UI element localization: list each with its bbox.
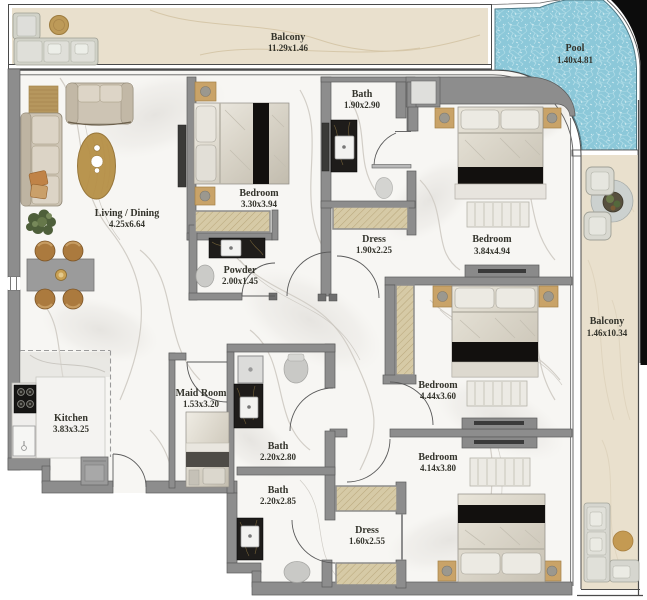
svg-text:1.46x10.34: 1.46x10.34 [587, 328, 628, 338]
svg-text:Bedroom: Bedroom [418, 452, 458, 463]
svg-text:Bath: Bath [268, 441, 289, 452]
svg-text:Powder: Powder [224, 265, 257, 276]
svg-text:4.14x3.80: 4.14x3.80 [420, 463, 457, 473]
svg-text:Kitchen: Kitchen [54, 413, 88, 424]
svg-text:Balcony: Balcony [271, 32, 305, 43]
svg-text:2.00x1.45: 2.00x1.45 [222, 276, 259, 286]
svg-text:Dress: Dress [355, 525, 379, 536]
svg-text:4.44x3.60: 4.44x3.60 [420, 391, 457, 401]
svg-text:1.90x2.25: 1.90x2.25 [356, 245, 393, 255]
svg-text:1.90x2.90: 1.90x2.90 [344, 100, 381, 110]
svg-text:Maid Room: Maid Room [176, 388, 228, 399]
svg-text:Living / Dining: Living / Dining [95, 208, 159, 219]
svg-text:Bedroom: Bedroom [472, 234, 512, 245]
svg-text:3.30x3.94: 3.30x3.94 [241, 199, 278, 209]
svg-text:1.53x3.20: 1.53x3.20 [183, 399, 220, 409]
svg-text:3.84x4.94: 3.84x4.94 [474, 246, 511, 256]
svg-text:Bedroom: Bedroom [418, 380, 458, 391]
svg-text:Pool: Pool [566, 43, 585, 54]
svg-text:Bath: Bath [268, 485, 289, 496]
svg-text:Bedroom: Bedroom [239, 188, 279, 199]
svg-text:Balcony: Balcony [590, 316, 624, 327]
svg-text:3.83x3.25: 3.83x3.25 [53, 424, 90, 434]
svg-text:Dress: Dress [362, 234, 386, 245]
svg-text:Bath: Bath [352, 89, 373, 100]
svg-text:11.29x1.46: 11.29x1.46 [268, 43, 309, 53]
svg-text:2.20x2.85: 2.20x2.85 [260, 496, 297, 506]
svg-text:1.40x4.81: 1.40x4.81 [557, 55, 594, 65]
svg-text:4.25x6.64: 4.25x6.64 [109, 219, 146, 229]
svg-text:1.60x2.55: 1.60x2.55 [349, 536, 386, 546]
svg-text:2.20x2.80: 2.20x2.80 [260, 452, 297, 462]
